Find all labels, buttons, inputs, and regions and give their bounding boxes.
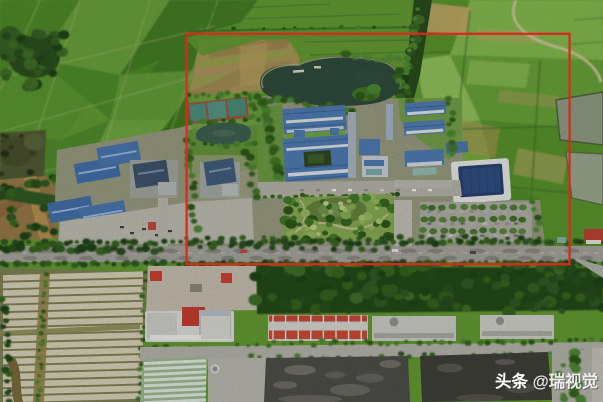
svg-text:头条 @瑞视觉: 头条 @瑞视觉 [495, 371, 598, 391]
